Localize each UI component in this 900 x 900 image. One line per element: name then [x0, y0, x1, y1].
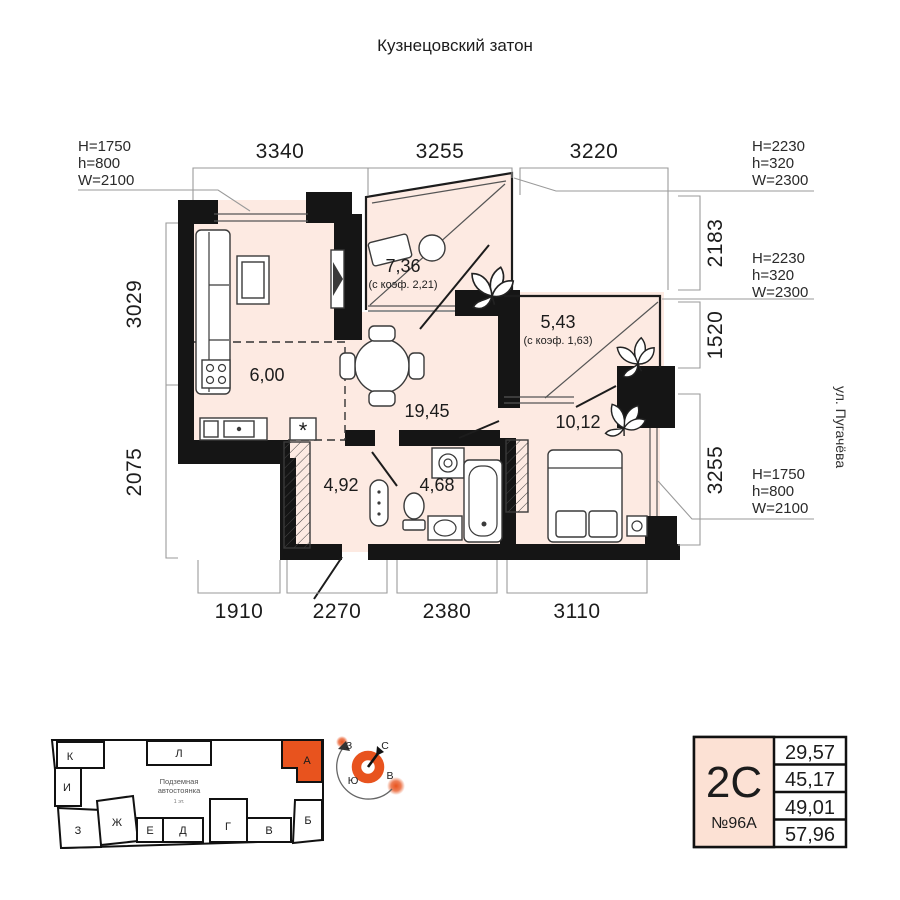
- spec-right-top-3: W=2300: [752, 172, 808, 189]
- spec-right-mid-1: H=2230: [752, 250, 805, 267]
- site-plan: К И З Ж Е Д Г В Б Л А Подземная автостоя…: [52, 740, 323, 848]
- balcony-table: [419, 235, 445, 261]
- kitchen-counter: *: [200, 418, 316, 443]
- site-block-label: З: [75, 825, 82, 837]
- compass: С В Ю З: [336, 736, 405, 799]
- dim-left-2: 2075: [123, 448, 146, 497]
- fridge-asterisk-icon: *: [299, 418, 308, 443]
- area-value-2: 45,17: [785, 769, 835, 791]
- apartment-type: 2С: [706, 758, 762, 807]
- dim-right-2: 1520: [704, 311, 727, 360]
- bedroom-wardrobe: [506, 440, 528, 512]
- tv-stand: [331, 250, 344, 308]
- spec-right-bottom-2: h=800: [752, 483, 794, 500]
- coffee-table: [237, 256, 269, 304]
- dim-right-1: 2183: [704, 219, 727, 268]
- dim-bottom-1: 1910: [215, 600, 264, 623]
- area-balcony-736: 7,36: [385, 256, 420, 276]
- spec-right-bottom-3: W=2100: [752, 500, 808, 517]
- site-block-label: Б: [304, 815, 311, 827]
- area-value-4: 57,96: [785, 824, 835, 846]
- spec-right-mid-2: h=320: [752, 267, 794, 284]
- spec-right-top-1: H=2230: [752, 138, 805, 155]
- site-block-label: Ж: [112, 817, 122, 829]
- washing-machine: [432, 448, 464, 478]
- area-bathroom: 4,68: [419, 475, 454, 495]
- site-block-K: [57, 742, 104, 768]
- spec-top-left-1: H=1750: [78, 138, 131, 155]
- area-hall: 4,92: [323, 475, 358, 495]
- bathtub: [464, 460, 502, 542]
- site-block-label: Г: [225, 821, 231, 833]
- coef-balcony-736: (с коэф. 2,21): [368, 279, 437, 291]
- compass-south-label: Ю: [348, 775, 359, 787]
- water-heater: [370, 480, 388, 526]
- site-block-label: К: [67, 751, 74, 763]
- dim-left-1: 3029: [123, 280, 146, 329]
- spec-right-mid-3: W=2300: [752, 284, 808, 301]
- hall-wardrobe: [284, 442, 310, 548]
- dim-top-1: 3340: [256, 140, 305, 163]
- dim-bottom-4: 3110: [553, 600, 600, 623]
- dim-bottom-2: 2270: [313, 600, 362, 623]
- spec-top-left-3: W=2100: [78, 172, 134, 189]
- underground-parking-label: Подземная: [160, 777, 199, 786]
- site-block-label: Д: [179, 825, 187, 837]
- underground-parking-label: автостоянка: [158, 786, 201, 795]
- site-block-label: Е: [146, 825, 153, 837]
- bed: [548, 450, 622, 542]
- dim-right-3: 3255: [704, 446, 727, 495]
- spec-top-left-2: h=800: [78, 155, 120, 172]
- project-title: Кузнецовский затон: [377, 36, 533, 55]
- apartment-number: №96А: [711, 815, 757, 832]
- dim-bottom-3: 2380: [423, 600, 472, 623]
- site-block-label: И: [63, 782, 71, 794]
- underground-parking-sublabel: 1 эт.: [174, 799, 185, 805]
- dim-top-2: 3255: [416, 140, 465, 163]
- floorplan-canvas: Кузнецовский затон: [0, 0, 900, 900]
- area-balcony-543: 5,43: [540, 312, 575, 332]
- site-block-label: А: [303, 755, 311, 767]
- spec-right-bottom-1: H=1750: [752, 466, 805, 483]
- spec-right-top-2: h=320: [752, 155, 794, 172]
- bathroom-sink: [428, 516, 462, 540]
- area-value-3: 49,01: [785, 797, 835, 819]
- stove: [202, 360, 230, 388]
- site-block-label: Л: [175, 748, 182, 760]
- compass-north-label: С: [381, 740, 389, 752]
- area-living: 19,45: [404, 401, 449, 421]
- site-block-label: В: [265, 825, 272, 837]
- dim-top-3: 3220: [570, 140, 619, 163]
- coef-balcony-543: (с коэф. 1,63): [523, 335, 592, 347]
- area-kitchen: 6,00: [249, 365, 284, 385]
- apartment-info-card: 2С №96А 29,57 45,17 49,01 57,96: [694, 737, 846, 847]
- toilet: [403, 493, 425, 530]
- area-bedroom: 10,12: [555, 412, 600, 432]
- bedside-table: [627, 516, 647, 536]
- street-label: ул. Пугачёва: [833, 386, 849, 468]
- compass-west-label: З: [346, 740, 352, 752]
- area-value-1: 29,57: [785, 742, 835, 764]
- compass-east-label: В: [386, 770, 393, 782]
